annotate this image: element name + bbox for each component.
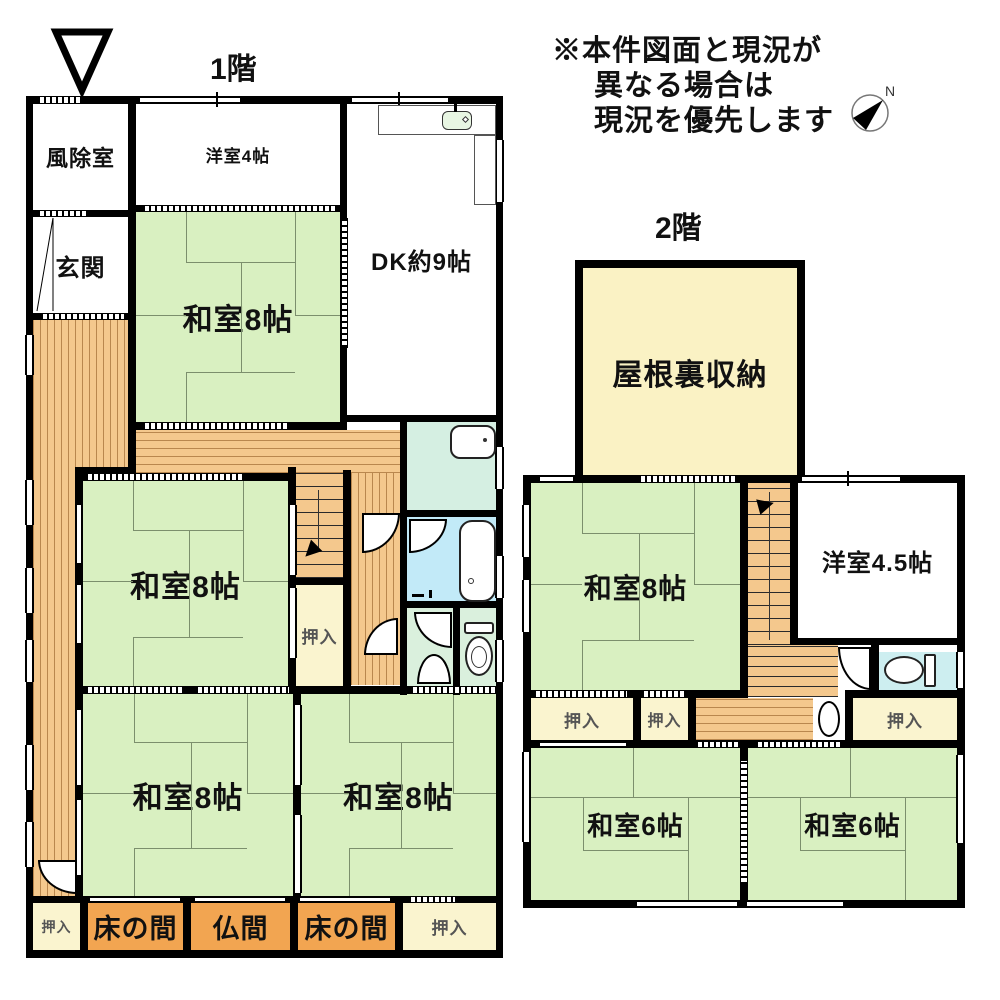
tatami-seam-line <box>583 850 688 851</box>
tatami-seam-line <box>186 372 187 422</box>
room-label: 押入 <box>647 707 681 731</box>
room-label: 和室8帖 <box>133 773 244 817</box>
sliding-door <box>533 690 628 698</box>
toilet-tank-icon <box>924 654 936 687</box>
window <box>802 475 900 483</box>
window <box>522 580 531 632</box>
tatami-seam-line <box>582 483 583 533</box>
room-label: 床の間 <box>94 907 178 946</box>
disclaimer-line3: 現況を優先します <box>552 104 834 139</box>
tatami-seam-line <box>133 637 134 686</box>
room-label: 押入 <box>42 917 72 937</box>
window <box>495 556 504 598</box>
sliding-door <box>641 690 687 698</box>
room-windbreak: 風除室 <box>33 104 128 210</box>
tatami-seam-line <box>694 483 695 584</box>
wall <box>128 96 136 474</box>
sliding-door <box>195 686 290 694</box>
stairs-1f <box>296 473 343 578</box>
room-japanese8-ne: 和室8帖 <box>136 212 340 422</box>
sliding-door <box>75 710 83 785</box>
room-label: 和室8帖 <box>130 562 241 606</box>
sliding-door <box>288 588 297 658</box>
window <box>300 896 390 903</box>
window <box>522 752 531 842</box>
bath-faucet-icon <box>429 590 432 598</box>
window <box>522 505 531 557</box>
sliding-door <box>85 473 243 481</box>
stairs-rail-line <box>318 490 319 552</box>
kitchen-counter <box>378 105 496 135</box>
wall <box>395 903 403 950</box>
tatami-seam-line <box>247 694 248 793</box>
room-label: 押入 <box>887 707 923 732</box>
toilet-tank-icon <box>464 622 494 634</box>
wall <box>740 483 748 698</box>
closet-2f-3: 押入 <box>853 698 957 740</box>
window <box>747 900 843 908</box>
washbasin-icon <box>450 425 496 459</box>
entrance-direction-icon <box>50 26 114 98</box>
window <box>637 900 737 908</box>
floor-plan-canvas: 1階 2階 ※本件図面と現況が 異なる場合は 現況を優先します N docume… <box>0 0 1000 1000</box>
wall <box>575 260 583 483</box>
wall-tick <box>216 92 218 107</box>
window <box>90 896 180 903</box>
room-label: 和室8帖 <box>584 567 688 607</box>
closet-se: 押入 <box>403 903 496 950</box>
disclaimer-line2: 異なる場合は <box>552 69 834 104</box>
wall <box>340 415 503 422</box>
wall <box>80 903 88 950</box>
corridor-hallway <box>136 430 400 473</box>
window <box>495 447 504 489</box>
corridor-engawa-narrow <box>33 470 75 903</box>
window <box>956 652 965 688</box>
faucet-icon <box>454 98 457 112</box>
tatami-seam-line <box>295 315 340 316</box>
wall <box>400 422 407 695</box>
wall <box>523 900 965 908</box>
sliding-door <box>40 313 125 320</box>
closet-mid: 押入 <box>296 585 343 686</box>
window <box>352 96 448 104</box>
window <box>140 96 240 104</box>
toilet-icon <box>884 656 924 684</box>
room-western45: 洋室4.5帖 <box>798 483 957 638</box>
room-label: 風除室 <box>46 141 115 173</box>
tatami-seam-line <box>694 584 740 585</box>
room-label: DK約9帖 <box>371 242 472 277</box>
window <box>25 640 34 682</box>
window <box>540 475 573 483</box>
wall <box>183 903 191 950</box>
sliding-door <box>75 505 83 563</box>
room-label: 和室8帖 <box>183 295 294 339</box>
washbasin-drain-icon <box>483 438 487 442</box>
wall <box>288 578 351 585</box>
alcove-tokonoma-right: 床の間 <box>298 903 395 950</box>
wall <box>790 475 798 645</box>
stairs-2f-landing-turn <box>748 645 838 697</box>
window <box>25 335 34 375</box>
tatami-seam-line <box>531 584 582 585</box>
wall <box>797 260 805 483</box>
tatami-seam-line <box>453 694 454 793</box>
room-label: 押入 <box>564 707 600 732</box>
tatami-seam-line <box>349 694 350 742</box>
window <box>25 822 34 867</box>
sliding-door <box>638 475 738 483</box>
room-western4: 洋室4帖 <box>136 104 340 205</box>
closet-2f-2: 押入 <box>641 698 688 740</box>
window <box>25 745 34 790</box>
window <box>540 741 626 748</box>
tatami-seam-line <box>247 793 293 794</box>
bathtub-drain-icon <box>468 578 474 584</box>
room-label: 洋室4帖 <box>206 142 270 167</box>
compass-north-label: N <box>885 83 895 99</box>
closet-sw: 押入 <box>33 903 80 950</box>
room-japanese8-sw: 和室8帖 <box>83 694 293 896</box>
wall <box>496 96 503 958</box>
corridor-engawa-wide <box>33 320 128 470</box>
sliding-door <box>293 705 302 785</box>
room-label: 屋根裏収納 <box>613 350 768 394</box>
tatami-seam-line <box>748 797 957 798</box>
entrance-door-lines <box>33 217 128 313</box>
room-label: 洋室4.5帖 <box>822 543 933 578</box>
window <box>956 755 965 843</box>
sliding-door <box>37 96 83 104</box>
tatami-seam-line <box>582 640 583 690</box>
room-japanese8-se: 和室8帖 <box>301 694 496 896</box>
sliding-door <box>740 760 748 885</box>
window <box>495 640 504 682</box>
window <box>195 896 285 903</box>
stairs-rail-line <box>769 492 770 640</box>
tatami-seam-line <box>800 797 801 850</box>
room-label: 押入 <box>432 914 468 939</box>
tatami-seam-line <box>639 533 640 641</box>
tatami-seam-line <box>134 848 135 896</box>
alcove-tokonoma-left: 床の間 <box>88 903 183 950</box>
tatami-seam-line <box>633 748 634 797</box>
tatami-seam-line <box>582 640 694 641</box>
bath-faucet-icon <box>412 594 424 597</box>
sliding-door <box>408 896 456 903</box>
tatami-seam-line <box>189 530 190 637</box>
tatami-seam-line <box>800 850 905 851</box>
wall <box>400 601 503 608</box>
tatami-seam-line <box>83 581 133 582</box>
floor2-title: 2階 <box>655 203 702 247</box>
tatami-seam-line <box>186 372 295 373</box>
room-label: 仏間 <box>213 907 269 946</box>
tatami-seam-line <box>688 797 689 900</box>
window <box>25 480 34 525</box>
disclaimer-note: ※本件図面と現況が 異なる場合は 現況を優先します <box>552 34 834 139</box>
washbasin-icon <box>818 701 840 737</box>
wall <box>790 638 965 645</box>
tatami-seam-line <box>83 793 134 794</box>
sliding-door <box>410 686 496 694</box>
tatami-seam-line <box>401 742 402 847</box>
tatami-seam-line <box>453 793 496 794</box>
room-label: 和室8帖 <box>343 773 454 817</box>
sliding-door <box>341 218 348 348</box>
tatami-seam-line <box>301 793 349 794</box>
kitchen-counter <box>474 135 496 205</box>
room-japanese6-left: 和室6帖 <box>531 748 740 900</box>
wall-tick <box>847 471 849 486</box>
corridor-2f <box>696 698 813 740</box>
room-japanese8-mid: 和室8帖 <box>83 481 288 686</box>
room-label: 床の間 <box>305 907 389 946</box>
sliding-door <box>37 210 89 217</box>
wall <box>290 903 298 950</box>
tatami-seam-line <box>133 481 134 530</box>
tatami-seam-line <box>243 581 288 582</box>
room-japanese6-right: 和室6帖 <box>748 748 957 900</box>
tatami-seam-line <box>243 481 244 581</box>
wall <box>575 260 805 268</box>
sliding-door <box>288 505 297 575</box>
tatami-seam-line <box>349 848 350 896</box>
tatami-seam-line <box>191 742 192 847</box>
sliding-door <box>142 205 338 212</box>
disclaimer-line1: ※本件図面と現況が <box>552 34 834 69</box>
wall <box>453 608 460 695</box>
toilet-bowl-icon <box>471 646 487 668</box>
tatami-seam-line <box>531 797 740 798</box>
room-label: 和室6帖 <box>804 806 900 843</box>
closet-2f-1: 押入 <box>531 698 633 740</box>
tatami-seam-line <box>134 848 246 849</box>
wall <box>26 896 83 903</box>
floor1-title: 1階 <box>210 44 257 88</box>
sliding-door <box>142 422 290 430</box>
tatami-seam-line <box>136 315 186 316</box>
window <box>495 140 504 202</box>
alcove-butsuma: 仏間 <box>191 903 290 950</box>
tatami-seam-line <box>583 797 584 850</box>
wall <box>845 690 965 698</box>
room-japanese8-2f: 和室8帖 <box>531 483 740 690</box>
tatami-seam-line <box>905 797 906 900</box>
sliding-door <box>85 686 185 694</box>
tatami-seam-line <box>186 212 187 262</box>
sliding-door <box>695 741 741 748</box>
window <box>25 568 34 613</box>
tatami-seam-line <box>134 694 135 742</box>
compass-icon: N <box>843 76 907 140</box>
room-label: 押入 <box>302 623 338 648</box>
sliding-door <box>293 815 302 893</box>
tatami-seam-line <box>295 212 296 315</box>
room-attic-storage: 屋根裏収納 <box>583 268 797 475</box>
room-label: 和室6帖 <box>587 806 683 843</box>
bathtub-icon <box>459 520 496 602</box>
tatami-seam-line <box>850 748 851 797</box>
tatami-seam-line <box>349 848 453 849</box>
wall <box>26 950 503 958</box>
tatami-seam-line <box>241 262 242 371</box>
sliding-door <box>75 585 83 643</box>
wall <box>400 510 503 517</box>
sliding-door <box>755 741 841 748</box>
tatami-seam-line <box>133 637 243 638</box>
